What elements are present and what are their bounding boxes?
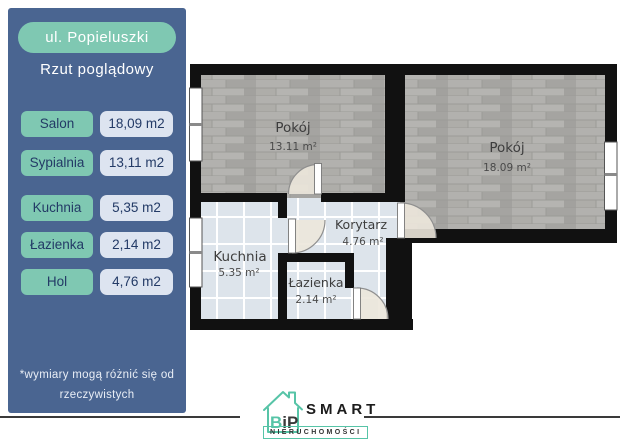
room-label-kuchnia: Kuchnia — [21, 195, 93, 221]
table-row: Salon 18,09 m2 — [21, 111, 173, 137]
wall-bottom — [190, 319, 413, 330]
info-sidebar: ul. Popieluszki Rzut poglądowy Salon 18,… — [8, 8, 186, 413]
logo-smart-text: SMART — [306, 401, 379, 418]
room-area-sypialnia: 13,11 m2 — [100, 150, 173, 176]
window-kitchen — [190, 218, 203, 287]
bathroom-name: Łazienka — [287, 275, 343, 290]
room-area-hol: 4,76 m2 — [100, 269, 173, 295]
kitchen-area: 5.35 m² — [218, 267, 259, 279]
divider-left — [0, 416, 240, 418]
corridor-name: Korytarz — [335, 217, 387, 232]
wall-bath-right — [345, 253, 354, 288]
wall-room-left-bottom-b — [321, 193, 385, 202]
room-label-sypialnia: Sypialnia — [21, 150, 93, 176]
disclaimer-note: *wymiary mogą różnić się od rzeczywistyc… — [8, 365, 186, 405]
kitchen-name: Kuchnia — [213, 249, 266, 265]
table-row: Sypialnia 13,11 m2 — [21, 150, 173, 176]
table-row: Łazienka 2,14 m2 — [21, 232, 173, 258]
street-address-pill: ul. Popieluszki — [18, 22, 176, 53]
room-area-table: Salon 18,09 m2 Sypialnia 13,11 m2 Kuchni… — [8, 111, 186, 295]
table-row: Kuchnia 5,35 m2 — [21, 195, 173, 221]
room-right-area: 18.09 m² — [483, 162, 531, 174]
wall-kitchen-a — [278, 202, 287, 218]
wall-middle — [385, 64, 405, 202]
room-label-salon: Salon — [21, 111, 93, 137]
wall-kitchen-b — [278, 253, 287, 319]
room-area-lazienka: 2,14 m2 — [100, 232, 173, 258]
wall-room-left-bottom-a — [201, 193, 287, 202]
room-label-lazienka: Łazienka — [21, 232, 93, 258]
corridor-area: 4.76 m² — [342, 236, 383, 248]
room-label-hol: Hol — [21, 269, 93, 295]
room-area-kuchnia: 5,35 m2 — [100, 195, 173, 221]
plan-subtitle: Rzut poglądowy — [8, 61, 186, 78]
table-row: Hol 4,76 m2 — [21, 269, 173, 295]
room-right-name: Pokój — [489, 140, 524, 156]
room-left-area: 13.11 m² — [269, 141, 317, 153]
room-left-name: Pokój — [275, 120, 310, 136]
disclaimer-line-1: *wymiary mogą różnić się od — [8, 365, 186, 385]
divider-right — [364, 416, 620, 418]
wall-corridor-right — [386, 238, 412, 330]
room-area-salon: 18,09 m2 — [100, 111, 173, 137]
bathroom-area: 2.14 m² — [295, 294, 336, 306]
wall-bath-top — [278, 253, 354, 262]
logo-nieruchomosci-badge: NIERUCHOMOŚCI — [263, 426, 368, 439]
window-room-right — [605, 142, 618, 210]
disclaimer-line-2: rzeczywistych — [8, 385, 186, 405]
window-room-left — [190, 88, 203, 161]
